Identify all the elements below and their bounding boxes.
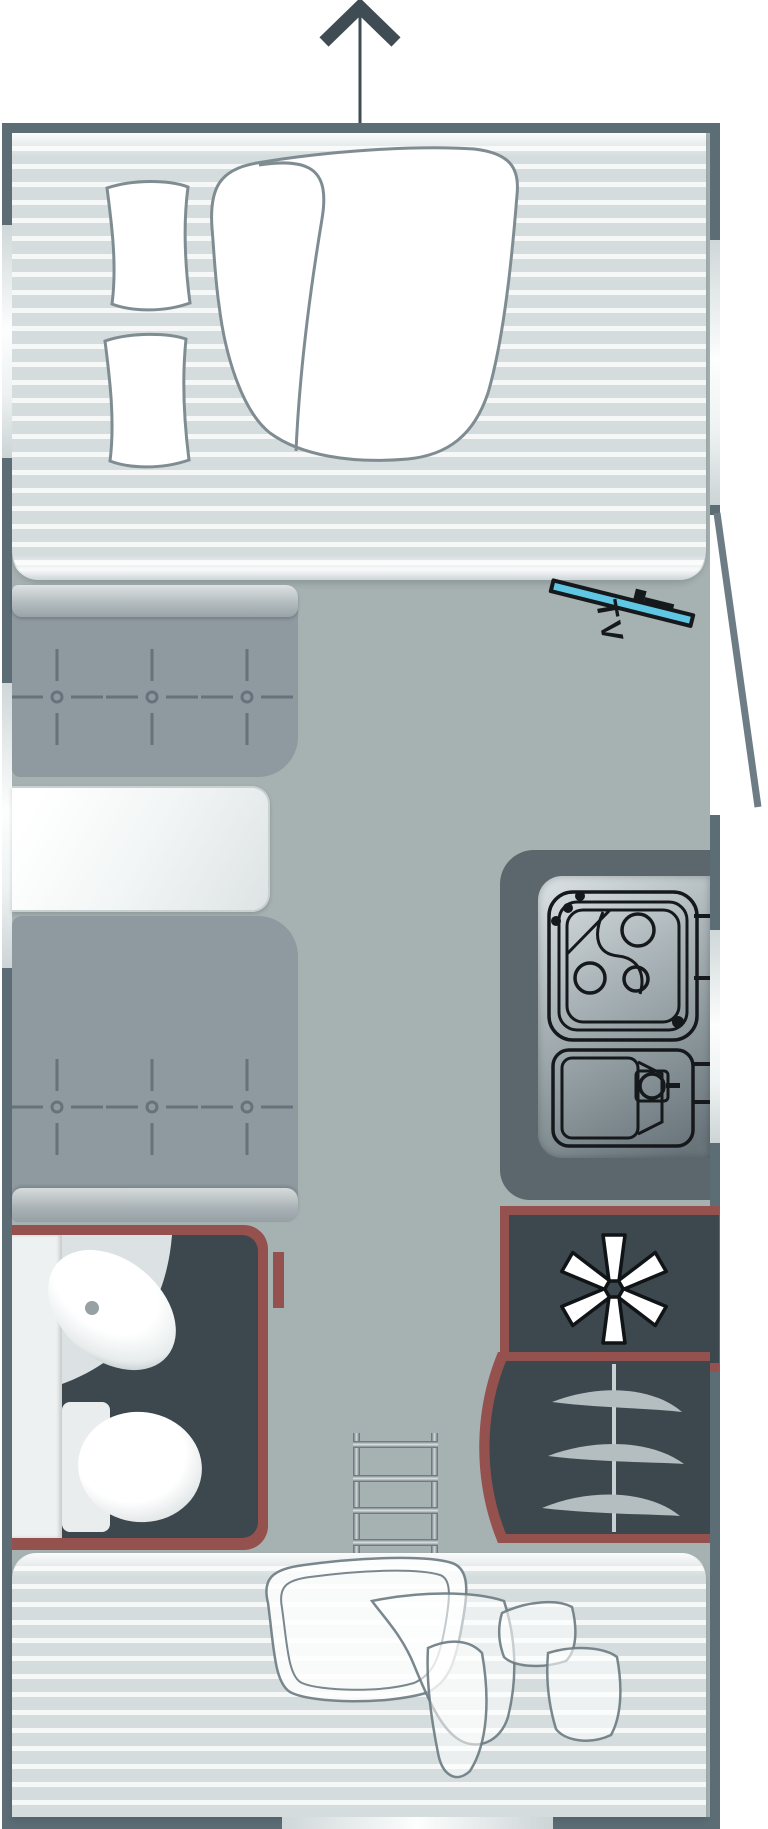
dinette-bench-rear	[12, 916, 298, 1222]
bench-tufting	[12, 916, 298, 1222]
window-left-front	[2, 225, 12, 458]
wall-left	[2, 458, 12, 683]
snowflake-asterisk-icon	[554, 1227, 674, 1351]
burner	[622, 914, 654, 946]
caravan-floorplan: TV	[0, 0, 768, 1829]
wall-right	[710, 815, 720, 930]
wardrobe	[460, 1345, 720, 1555]
ladder-rail	[431, 1433, 438, 1554]
sink-outer-frame	[553, 1050, 693, 1146]
burner	[624, 967, 648, 991]
pillow	[107, 182, 190, 310]
direction-arrow	[300, 0, 420, 125]
duvet	[212, 148, 518, 461]
duvet-fold	[428, 1642, 487, 1777]
tv-label: TV	[589, 597, 629, 646]
hob-knob	[563, 903, 573, 913]
ladder-rung	[353, 1539, 438, 1546]
ladder-rung	[353, 1475, 438, 1482]
wall-left	[2, 123, 12, 225]
pillow	[547, 1648, 620, 1741]
window-rear	[282, 1817, 553, 1829]
burner	[575, 963, 605, 993]
tap-icon	[640, 1074, 664, 1098]
sink-basin	[562, 1058, 638, 1138]
tv-mount: TV	[538, 556, 768, 676]
window-right-kitchen	[710, 930, 720, 1143]
drain-dot	[672, 1016, 684, 1028]
dinette-bench-front	[12, 585, 298, 777]
window-left-dinette	[2, 683, 12, 968]
ladder-rung	[353, 1441, 438, 1448]
window-right-front	[710, 240, 720, 505]
pillow	[105, 334, 189, 467]
dinette-table	[12, 786, 270, 912]
kitchen-appliances	[500, 850, 710, 1200]
hob-knob	[575, 891, 585, 901]
wall-left	[2, 968, 12, 1829]
bathroom-fixtures	[12, 1225, 268, 1550]
hob-knob	[551, 916, 561, 926]
ladder-rail	[353, 1433, 360, 1554]
bench-tufting	[12, 585, 298, 777]
ladder-rung	[353, 1507, 438, 1514]
wall-right	[710, 123, 720, 240]
basin-drain	[85, 1301, 99, 1315]
front-bedding	[12, 133, 706, 585]
bunk-ladder	[353, 1433, 438, 1554]
bathroom-door-handle	[273, 1252, 284, 1308]
rear-bedding	[12, 1553, 706, 1817]
wall-front	[2, 123, 720, 133]
